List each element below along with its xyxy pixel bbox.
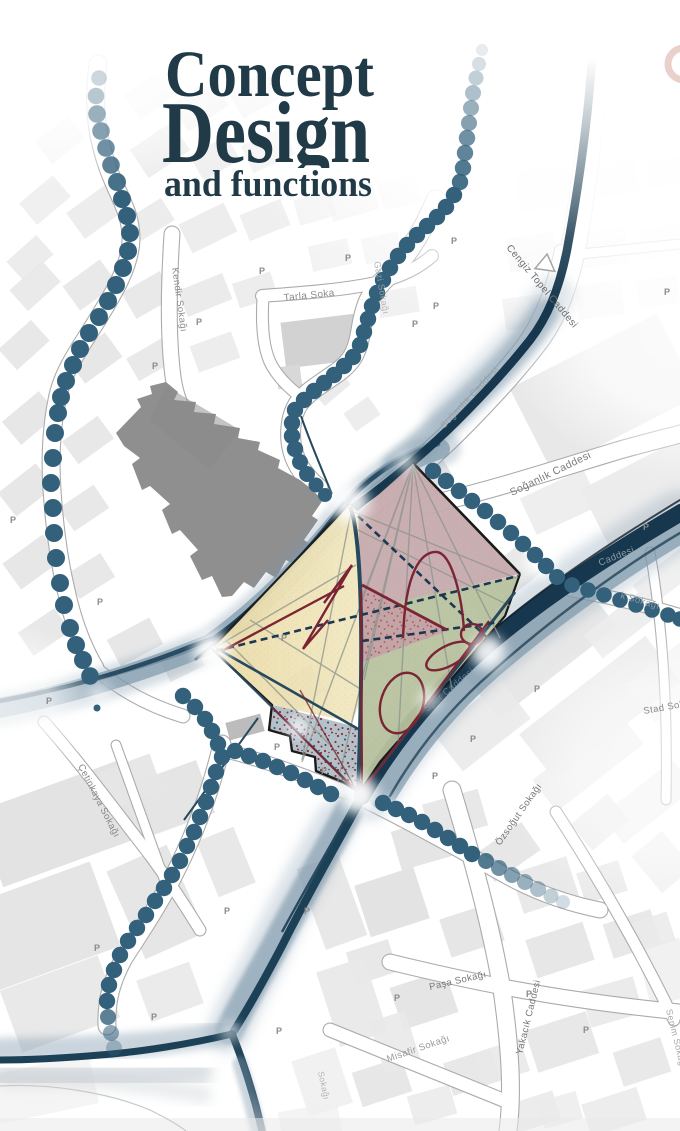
svg-text:P: P <box>412 319 418 329</box>
svg-text:P: P <box>394 993 400 1003</box>
svg-text:P: P <box>224 906 230 916</box>
svg-text:P: P <box>432 771 438 781</box>
svg-text:P: P <box>664 287 670 297</box>
svg-text:P: P <box>274 742 280 752</box>
svg-text:P: P <box>643 522 649 532</box>
svg-text:P: P <box>10 515 16 525</box>
svg-text:P: P <box>196 317 202 327</box>
svg-text:P: P <box>259 266 265 276</box>
svg-text:P: P <box>151 1012 157 1022</box>
svg-text:P: P <box>276 1026 282 1036</box>
svg-text:and functions: and functions <box>164 164 372 205</box>
svg-text:P: P <box>321 766 327 776</box>
svg-text:P: P <box>583 1025 589 1035</box>
svg-text:P: P <box>152 361 158 371</box>
svg-text:P: P <box>451 236 457 246</box>
svg-text:P: P <box>534 684 540 694</box>
svg-text:P: P <box>97 597 103 607</box>
svg-text:P: P <box>433 301 439 311</box>
svg-text:P: P <box>470 734 476 744</box>
svg-text:P: P <box>281 633 287 643</box>
svg-text:P: P <box>345 253 351 263</box>
svg-text:P: P <box>304 906 310 916</box>
svg-text:P: P <box>526 989 532 999</box>
svg-text:P: P <box>94 943 100 953</box>
svg-text:P: P <box>46 696 52 706</box>
